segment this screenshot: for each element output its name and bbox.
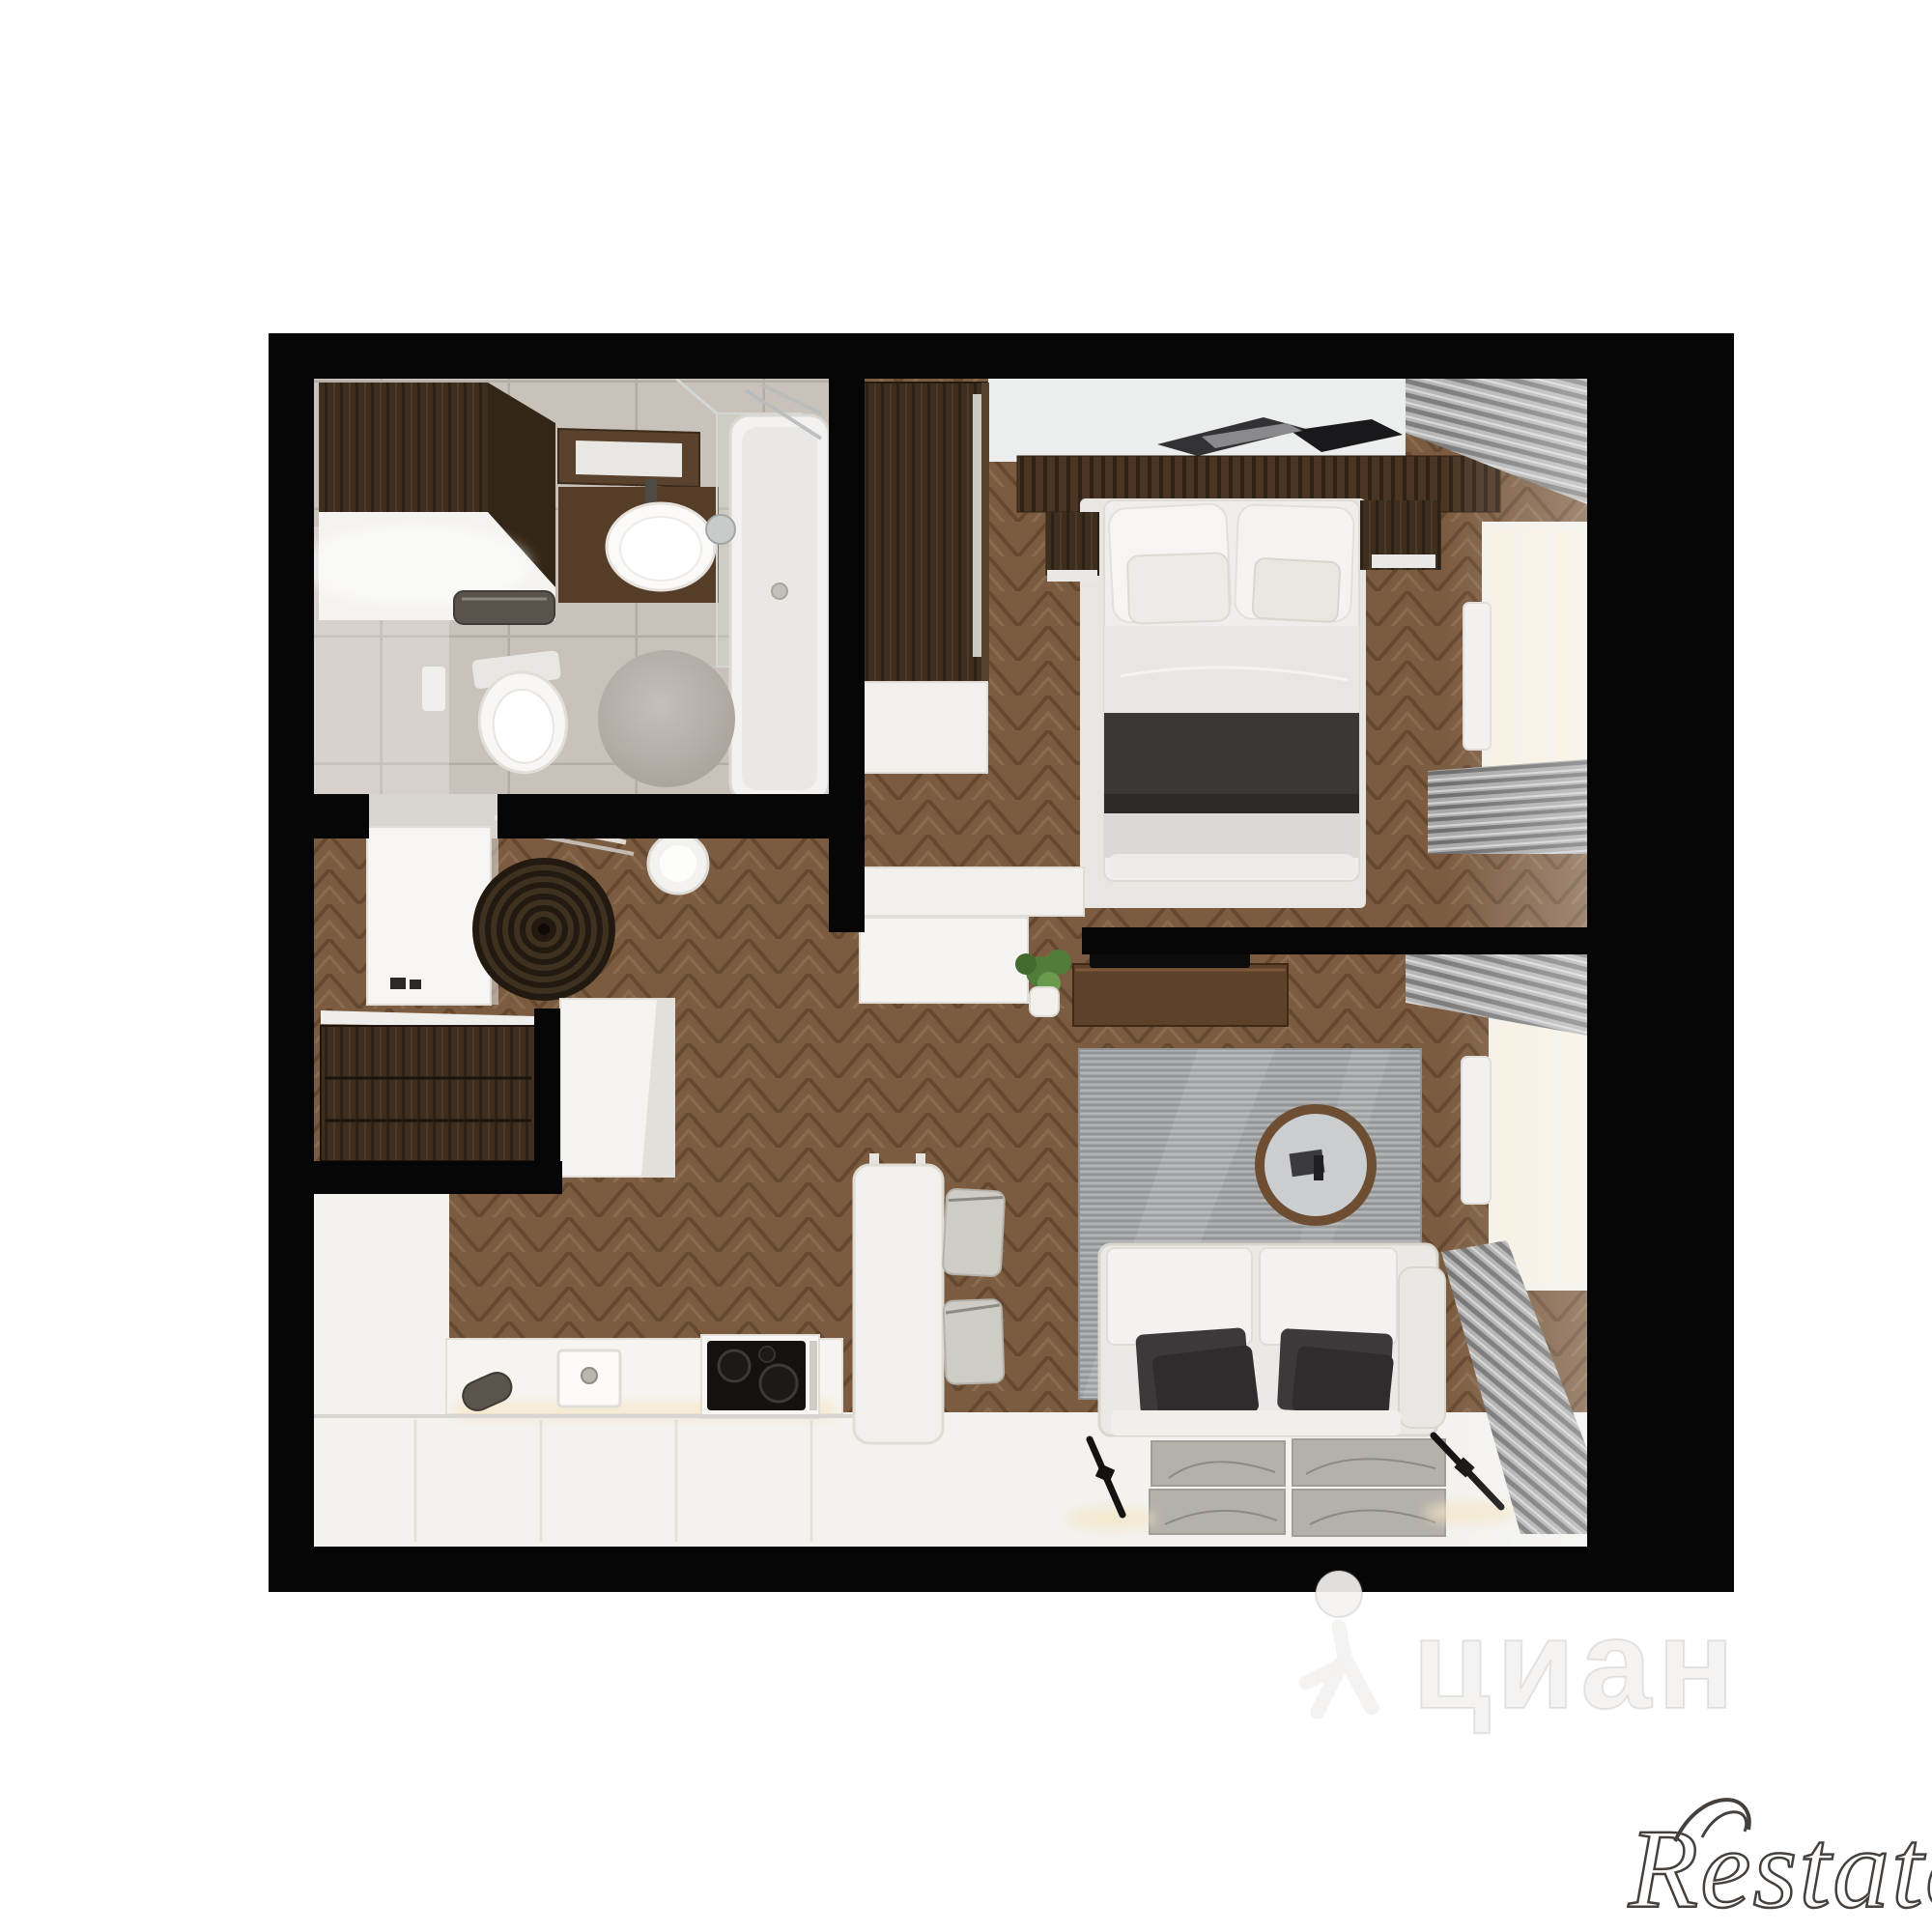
- watermark-cian: циан: [1306, 1571, 1740, 1735]
- coffee-table-reflection-2: [1314, 1155, 1323, 1180]
- oven-handle: [810, 1341, 817, 1410]
- bathtub-basin: [742, 427, 817, 790]
- bedroom-window-light: [1444, 379, 1587, 927]
- living-window-light: [1444, 954, 1587, 1546]
- wardrobe-side: [981, 383, 989, 682]
- pillow-small-right: [1252, 558, 1340, 623]
- wardrobe-handle: [973, 394, 981, 657]
- dining-chair-2: [944, 1299, 1005, 1384]
- restate-logo-swoosh-icon: [1663, 1785, 1770, 1845]
- cian-person-icon-body: [1306, 1627, 1372, 1712]
- burner-2: [760, 1365, 797, 1402]
- burner-1: [719, 1350, 750, 1381]
- plant-pot: [1030, 987, 1059, 1016]
- media-console: [1073, 964, 1288, 1026]
- cian-watermark-text: циан: [1412, 1593, 1740, 1735]
- bath-wall-cabinet: [319, 383, 488, 512]
- kitchen-faucet: [582, 1368, 597, 1383]
- towel-bar: [454, 591, 554, 624]
- floor-plan-canvas: циан: [0, 0, 1932, 1932]
- sofa-front-band: [1111, 1410, 1401, 1435]
- nightstand-left-shelf: [1047, 570, 1097, 582]
- kitchen-left-counter-floor: [314, 1179, 449, 1412]
- wall-bath-south-left: [269, 794, 369, 838]
- hall-console: [321, 1026, 535, 1161]
- nightstand-right-shelf: [1372, 554, 1435, 568]
- bath-round-rug: [598, 650, 735, 787]
- bathtub-drain: [772, 583, 787, 599]
- sconce-glow-left: [1066, 1507, 1155, 1530]
- wardrobe: [860, 383, 987, 682]
- door-hardware: [390, 978, 406, 989]
- bedroom-low-cabinet: [860, 682, 987, 773]
- pillow-small-left: [1127, 553, 1230, 624]
- dining-table: [854, 1165, 943, 1443]
- floor-plan-image: циан Restate: [0, 0, 1932, 1932]
- bathroom-sink-basin: [620, 517, 701, 581]
- sofa-pillow-dark-right-2: [1292, 1346, 1395, 1421]
- sofa-back-cushion-right: [1260, 1248, 1397, 1345]
- bed-base: [1108, 854, 1355, 877]
- bathroom-door-leaf: [367, 827, 491, 1005]
- stool-top: [660, 845, 696, 882]
- bed-blanket-fold: [1104, 794, 1359, 813]
- burner-3: [759, 1347, 775, 1362]
- spiral-rug: [472, 858, 615, 1001]
- cian-person-icon-head: [1316, 1571, 1362, 1617]
- bedroom-dresser: [860, 867, 1084, 916]
- door-hardware-2: [410, 980, 421, 989]
- wall-bedroom-living: [1082, 927, 1587, 954]
- wall-stub-horizontal: [269, 1161, 562, 1194]
- dining-chair-1: [943, 1188, 1006, 1276]
- vanity-mirror-glass: [576, 440, 682, 477]
- bedroom-sliding-door: [860, 918, 1028, 1003]
- toilet-paper-holder: [422, 667, 445, 711]
- wall-bath-south-right: [497, 794, 865, 838]
- bed-foot-blanket: [1104, 813, 1359, 858]
- shower-head: [706, 515, 735, 544]
- sofa-armrest: [1399, 1267, 1445, 1428]
- nightstand-left: [1045, 512, 1099, 576]
- wall-stub-vertical: [534, 1009, 560, 1180]
- wall-bath-bedroom: [829, 333, 865, 932]
